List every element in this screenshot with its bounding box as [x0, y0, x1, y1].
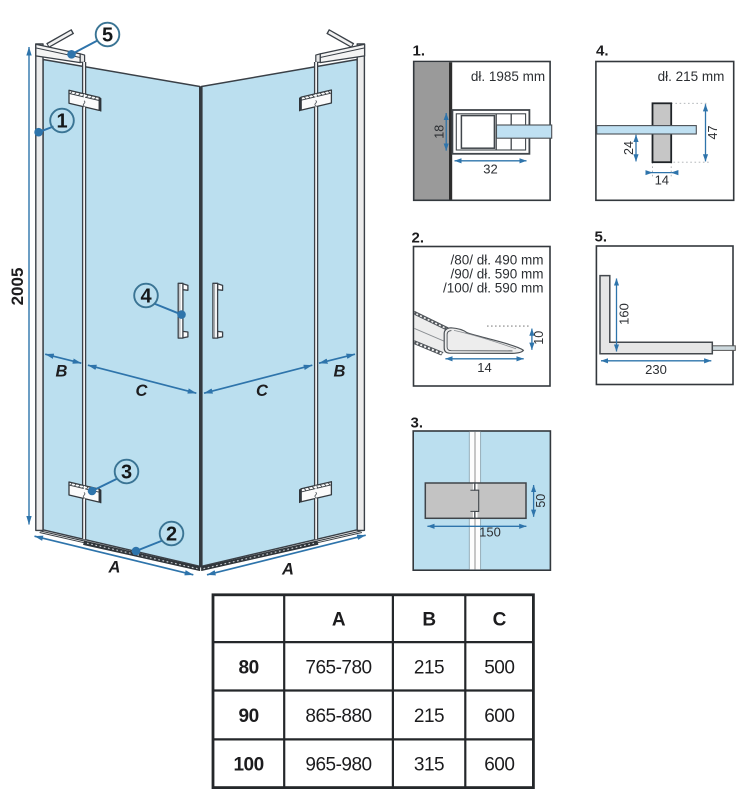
svg-text:150: 150 — [479, 525, 501, 540]
svg-text:A: A — [108, 559, 121, 577]
svg-text:dł. 1985 mm: dł. 1985 mm — [471, 69, 545, 84]
svg-text:160: 160 — [616, 303, 631, 325]
svg-text:dł. 215 mm: dł. 215 mm — [658, 69, 725, 84]
svg-text:1.: 1. — [413, 43, 426, 60]
svg-text:500: 500 — [484, 658, 514, 679]
svg-text:215: 215 — [414, 658, 444, 679]
svg-text:/100/ dł. 590 mm: /100/ dł. 590 mm — [443, 281, 544, 296]
svg-text:965-980: 965-980 — [305, 755, 371, 776]
svg-text:18: 18 — [432, 125, 446, 139]
svg-text:14: 14 — [477, 360, 491, 375]
svg-text:47: 47 — [706, 126, 720, 140]
svg-text:B: B — [422, 610, 435, 631]
svg-text:C: C — [136, 382, 149, 400]
svg-text:315: 315 — [414, 755, 444, 776]
svg-text:100: 100 — [233, 755, 263, 776]
svg-text:32: 32 — [483, 162, 497, 177]
svg-text:600: 600 — [484, 706, 514, 727]
svg-text:50: 50 — [534, 494, 548, 508]
svg-text:C: C — [493, 610, 507, 631]
svg-text:B: B — [56, 363, 68, 381]
svg-text:230: 230 — [645, 362, 667, 377]
svg-text:10: 10 — [532, 331, 546, 345]
svg-text:80: 80 — [239, 658, 259, 679]
svg-text:/80/ dł. 490 mm: /80/ dł. 490 mm — [450, 253, 543, 268]
svg-text:865-880: 865-880 — [305, 706, 371, 727]
svg-text:5.: 5. — [595, 229, 608, 246]
svg-text:2: 2 — [166, 524, 177, 546]
svg-text:3.: 3. — [411, 415, 424, 432]
svg-text:3: 3 — [121, 462, 132, 484]
svg-text:14: 14 — [655, 173, 669, 188]
svg-text:2.: 2. — [412, 230, 425, 247]
svg-text:765-780: 765-780 — [305, 658, 371, 679]
svg-text:4: 4 — [140, 286, 152, 308]
svg-text:5: 5 — [102, 25, 113, 47]
svg-text:600: 600 — [484, 755, 514, 776]
svg-text:A: A — [281, 561, 294, 579]
svg-text:/90/ dł. 590 mm: /90/ dł. 590 mm — [450, 267, 543, 282]
svg-text:B: B — [334, 363, 346, 381]
svg-text:2005: 2005 — [8, 268, 27, 306]
svg-text:215: 215 — [414, 706, 444, 727]
svg-text:90: 90 — [239, 706, 259, 727]
svg-text:1: 1 — [56, 111, 67, 133]
svg-text:A: A — [332, 610, 346, 631]
svg-text:4.: 4. — [596, 43, 609, 60]
svg-text:24: 24 — [622, 141, 636, 155]
svg-text:C: C — [256, 382, 269, 400]
